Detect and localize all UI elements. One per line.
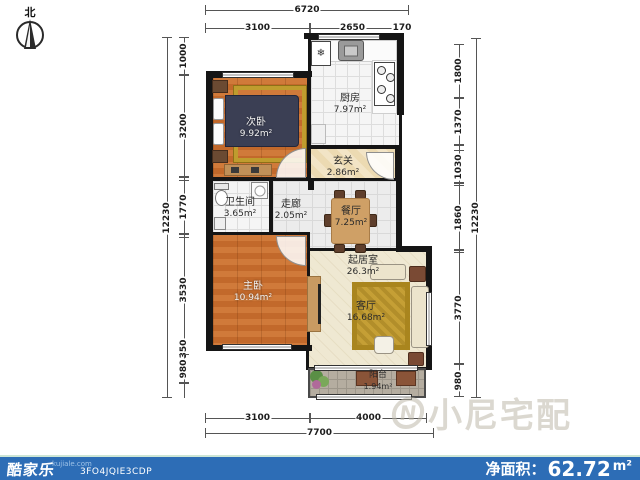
dim-top-segments: 3100 2650 170 <box>205 23 409 33</box>
kitchen-sink <box>338 40 364 61</box>
floorplan-canvas: 北 ❄ <box>0 0 640 480</box>
brand-logo: 酷家乐 <box>6 459 56 480</box>
bathroom-sink <box>214 217 226 230</box>
net-area-unit: m² <box>613 459 632 474</box>
net-area-label: 净面积： <box>485 458 545 479</box>
living-armchair-top <box>409 266 426 282</box>
wall-entry-dining-right <box>396 146 402 252</box>
watermark-text: 小尼宅配 <box>428 388 572 437</box>
balcony-box-1 <box>356 371 378 386</box>
living-armchair-bottom <box>408 352 424 366</box>
kitchen-stove <box>374 62 395 106</box>
bedroom2-bed <box>225 95 299 147</box>
wall-corridor-stub <box>308 178 314 190</box>
dim-left-overall: 12230 <box>162 37 172 398</box>
window-living-balcony <box>314 365 418 371</box>
window-master-bottom <box>222 344 292 350</box>
kitchen-appliance <box>311 124 326 144</box>
dim-left-segments: 1000 3200 1770 3530 350 980 <box>179 37 189 398</box>
living-loveseat <box>370 264 406 280</box>
balcony-box-2 <box>396 371 416 386</box>
dim-right-segments: 1800 1370 1030 1860 3770 980 <box>454 44 464 397</box>
bedroom2-nightstand-top <box>212 80 228 93</box>
window-living-right <box>426 292 432 346</box>
bedroom2-nightstand-bottom <box>212 150 228 163</box>
bedroom2-pillow-2 <box>213 123 224 145</box>
dim-bottom-overall: 7700 <box>205 428 434 438</box>
dining-chair-4 <box>355 244 366 253</box>
net-area-value: 62.72 <box>547 457 610 480</box>
fridge-snowflake-icon: ❄ <box>317 48 325 59</box>
compass-icon <box>16 21 44 49</box>
window-bedroom2-top <box>222 72 294 78</box>
dim-top-overall: 6720 <box>205 5 409 15</box>
compass-needle-highlight <box>26 25 30 47</box>
footer-bar: 酷家乐 kujiale.com 3FO4JQIE3CDP 净面积： 62.72 … <box>0 457 640 480</box>
dining-chair-3 <box>334 244 345 253</box>
plan-code: 3FO4JQIE3CDP <box>80 467 152 477</box>
bathroom-toilet-bowl <box>215 190 228 206</box>
compass: 北 <box>10 4 50 49</box>
dining-table <box>331 198 370 244</box>
living-side-table <box>374 336 394 354</box>
balcony-plant-3 <box>312 380 321 389</box>
dim-bottom-segments: 3100 4000 <box>205 413 427 423</box>
living-tv <box>318 284 321 324</box>
wall-left <box>206 71 211 351</box>
window-kitchen-top <box>318 34 380 40</box>
compass-north-label: 北 <box>10 4 50 20</box>
bathroom-washer <box>251 182 268 199</box>
bedroom2-dresser <box>224 164 272 176</box>
bedroom2-pillow-1 <box>213 98 224 120</box>
net-area: 净面积： 62.72 m² <box>485 457 632 480</box>
kitchen-fridge: ❄ <box>311 41 331 66</box>
dim-right-overall: 12230 <box>471 38 481 398</box>
bathroom-toilet-tank <box>214 183 229 190</box>
window-balcony-south <box>316 394 412 400</box>
